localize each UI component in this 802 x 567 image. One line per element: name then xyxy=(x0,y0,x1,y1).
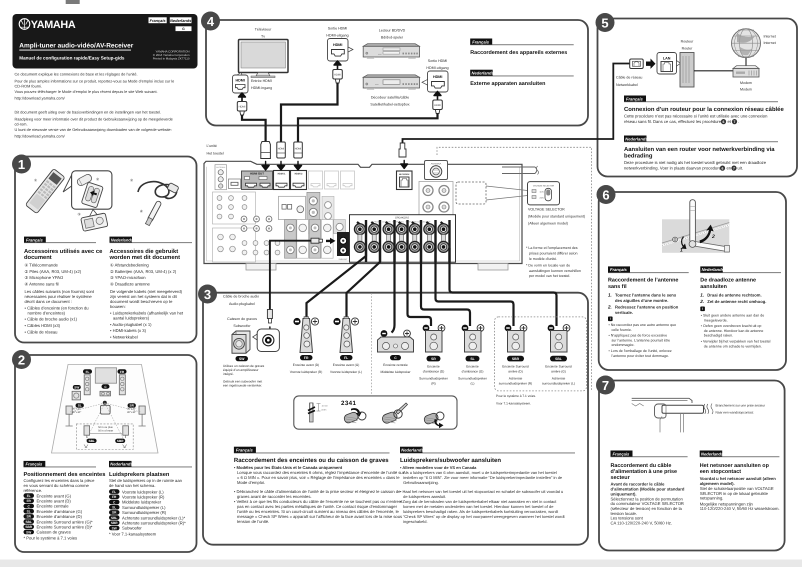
svg-text:SBL: SBL xyxy=(111,516,117,520)
svg-text:FL: FL xyxy=(344,356,348,360)
svg-text:(L): (L) xyxy=(471,382,475,386)
svg-text:HDMI-ingang: HDMI-ingang xyxy=(251,86,272,90)
svg-text:arrière (G): arrière (G) xyxy=(551,369,566,373)
svg-text:Achterste: Achterste xyxy=(552,377,566,381)
svg-text:HDMI-uitgang: HDMI-uitgang xyxy=(426,66,448,70)
svg-text:http://download.yamaha.com/: http://download.yamaha.com/ xyxy=(15,134,66,138)
svg-text:Middelste luidspreker: Middelste luidspreker xyxy=(380,370,411,374)
svg-text:Het toestel: Het toestel xyxy=(207,151,224,155)
svg-text:③: ③ xyxy=(78,213,81,217)
svg-text:30°±10°: 30°±10° xyxy=(72,411,81,414)
svg-text:50 in of meer: 50 in of meer xyxy=(98,429,113,432)
svg-text:④ Draadloze antenne: ④ Draadloze antenne xyxy=(110,282,151,287)
svg-text:Accessoires utilisés avec ce: Accessoires utilisés avec ce xyxy=(24,248,103,255)
svg-text:Tournez l’antenne dans le sens: Tournez l’antenne dans le sens xyxy=(615,292,677,297)
svg-text:SL: SL xyxy=(470,357,474,361)
svg-text:Enceinte Surround: Enceinte Surround xyxy=(545,364,572,368)
svg-text:HDMI: HDMI xyxy=(235,79,244,83)
svg-text:HDMI-uitgang: HDMI-uitgang xyxy=(326,33,348,37)
svg-text:Internet: Internet xyxy=(764,34,776,38)
svg-text:6: 6 xyxy=(602,187,609,202)
svg-text:③ YPAO-microfoon: ③ YPAO-microfoon xyxy=(110,275,146,280)
svg-text:Gebruiksaanwijzing.: Gebruiksaanwijzing. xyxy=(403,480,439,485)
svg-text:Français: Français xyxy=(472,39,490,44)
svg-text:HDMI: HDMI xyxy=(434,104,441,107)
svg-text:• Verwijder bij het verpakken: • Verwijder bij het verpakken van het to… xyxy=(701,340,771,344)
svg-text:Enceinte: Enceinte xyxy=(427,364,440,368)
svg-text:② Piles (AAA, R03, UM-4) (x2): ② Piles (AAA, R03, UM-4) (x2) xyxy=(25,269,82,274)
svg-text:* La forme et l’emplacement de: * La forme et l’emplacement des xyxy=(526,246,578,250)
svg-text:LAN: LAN xyxy=(663,56,671,60)
svg-text:HDMI 1: HDMI 1 xyxy=(278,173,287,176)
svg-text:SBL: SBL xyxy=(89,439,95,443)
svg-text:Nederlands: Nederlands xyxy=(170,18,192,23)
svg-text:SR: SR xyxy=(431,357,436,361)
svg-text:YAMAHA: YAMAHA xyxy=(31,19,76,31)
svg-text:(R): (R) xyxy=(431,382,435,386)
svg-text:L’unité: L’unité xyxy=(207,144,217,148)
svg-text:SBL: SBL xyxy=(26,520,32,524)
svg-text:1: 1 xyxy=(680,248,683,254)
svg-text:• HDMI-kabels (x 3): • HDMI-kabels (x 3) xyxy=(110,328,147,333)
svg-text:• N’appliquez pas de force exc: • N’appliquez pas de force excessive xyxy=(609,334,668,338)
svg-text:secteur: secteur xyxy=(611,475,631,481)
svg-text:meegeleverde.: meegeleverde. xyxy=(704,318,728,322)
svg-text:de antenne. Hierdoor kan de an: de antenne. Hierdoor kan de antenne xyxy=(704,329,764,333)
svg-text:aantal luidsprekers): aantal luidsprekers) xyxy=(113,316,150,321)
svg-text:en: en xyxy=(727,166,732,171)
svg-text:sans fil: sans fil xyxy=(608,284,627,290)
svg-text:FL: FL xyxy=(27,494,31,498)
svg-text:2.: 2. xyxy=(699,299,704,304)
svg-text:Audio-plugkabel: Audio-plugkabel xyxy=(229,302,255,306)
svg-text:1.: 1. xyxy=(700,292,704,297)
svg-text:▬▬: ▬▬ xyxy=(378,53,382,55)
svg-text:tension de l’unité.: tension de l’unité. xyxy=(237,519,269,524)
svg-text:SBR: SBR xyxy=(512,357,520,361)
svg-text:De draadloze antenne: De draadloze antenne xyxy=(700,277,756,283)
svg-text:Surroundluidspreker: Surroundluidspreker xyxy=(458,377,488,381)
svg-text:Pour de plus amples informatio: Pour de plus amples informations sur ce … xyxy=(15,79,175,83)
svg-text:SUB OUT: SUB OUT xyxy=(339,258,349,261)
svg-text:cd-rom.: cd-rom. xyxy=(15,123,28,127)
svg-text:Français: Français xyxy=(610,267,628,272)
svg-text:FR: FR xyxy=(112,495,117,499)
svg-text:aansluitingen kunnen verschill: aansluitingen kunnen verschillen xyxy=(529,269,581,273)
svg-text:• Câble de réseau: • Câble de réseau xyxy=(25,329,59,334)
svg-text:Français: Français xyxy=(26,237,44,242)
svg-text:ingeschakeld.: ingeschakeld. xyxy=(403,519,427,524)
svg-text:Nederlands: Nederlands xyxy=(701,451,724,456)
svg-text:Enceinte Surround: Enceinte Surround xyxy=(502,364,529,368)
svg-text:SPEAKERS: SPEAKERS xyxy=(395,217,409,220)
svg-text:de antenne om schade te vermij: de antenne om schade te vermijden. xyxy=(704,344,762,348)
svg-text:HDMI: HDMI xyxy=(239,106,246,109)
svg-text:Cette procédure n’est pas néce: Cette procédure n’est pas nécessaire si … xyxy=(624,114,768,119)
svg-text:• Câble de broche audio (x1): • Câble de broche audio (x1) xyxy=(25,317,78,322)
svg-text:Câble de réseau: Câble de réseau xyxy=(616,76,642,80)
svg-text:④ Antenne sans fil: ④ Antenne sans fil xyxy=(25,282,59,287)
svg-text:celle fournie.: celle fournie. xyxy=(612,328,632,332)
svg-text:Achterste: Achterste xyxy=(509,377,523,381)
svg-text:SW: SW xyxy=(112,526,117,530)
svg-text:surroundluidspreker (R): surroundluidspreker (R) xyxy=(499,382,532,386)
svg-text:Raadpleeg voor meer informatie: Raadpleeg voor meer informatie over dit … xyxy=(15,117,173,121)
svg-text:2: 2 xyxy=(18,352,25,367)
svg-text:HDMI: HDMI xyxy=(295,147,302,150)
svg-text:SR: SR xyxy=(26,515,31,519)
svg-text:nombre d’enceintes): nombre d’enceintes) xyxy=(28,310,66,315)
svg-text:Zet de antenne recht omhoog.: Zet de antenne recht omhoog. xyxy=(707,299,766,304)
svg-text:CA 110-120/220-240 V, 50/60 Hz: CA 110-120/220-240 V, 50/60 Hz. xyxy=(611,520,672,525)
svg-text:Français: Français xyxy=(236,448,254,453)
svg-text:Caisson de graves: Caisson de graves xyxy=(227,317,257,321)
svg-text:FR: FR xyxy=(304,356,309,360)
svg-text:4: 4 xyxy=(207,14,215,29)
svg-text:NETWORK: NETWORK xyxy=(399,173,410,176)
svg-text:②: ② xyxy=(96,177,99,181)
svg-text:SBR: SBR xyxy=(25,525,32,529)
svg-text:ANTENNA: ANTENNA xyxy=(431,162,442,165)
svg-text:• Ne raccordez pas une autre a: • Ne raccordez pas une autre antenne que xyxy=(609,323,677,327)
svg-text:U kunt de nieuwste versie van: U kunt de nieuwste versie van de Gebruik… xyxy=(15,128,172,132)
svg-text:Aansluiten van een router voor: Aansluiten van een router voor netwerkve… xyxy=(624,146,775,153)
svg-text:Français: Français xyxy=(626,96,644,101)
svg-text:SBL: SBL xyxy=(555,357,562,361)
svg-text:Redressez l’antenne en positio: Redressez l’antenne en position xyxy=(615,304,679,309)
svg-text:Français: Français xyxy=(26,462,44,467)
svg-text:HDMI: HDMI xyxy=(333,43,342,47)
svg-text:Nederlands: Nederlands xyxy=(472,71,495,76)
svg-text:verticale.: verticale. xyxy=(615,310,633,315)
svg-text:7: 7 xyxy=(733,167,735,171)
svg-text:Internet: Internet xyxy=(764,41,776,45)
svg-text:* Voor 7.1-kanaalsysteem: * Voor 7.1-kanaalsysteem xyxy=(109,532,157,537)
svg-text:Luidsprekers/subwoofer aanslui: Luidsprekers/subwoofer aansluiten xyxy=(400,457,501,464)
svg-text:* De vorm en locatie van de: * De vorm en locatie van de xyxy=(526,263,570,267)
svg-text:SW: SW xyxy=(74,386,79,390)
svg-text:110V: 110V xyxy=(540,190,545,193)
svg-text:d’ambiance (G): d’ambiance (G) xyxy=(462,369,484,373)
svg-text:6: 6 xyxy=(722,167,724,171)
svg-text:Raccordement du câble: Raccordement du câble xyxy=(611,462,672,469)
svg-text:Ce document explique les conne: Ce document explique les connexions de b… xyxy=(15,72,138,76)
svg-text:10 mm: 10 mm xyxy=(322,405,328,408)
svg-text:een stopcontact: een stopcontact xyxy=(700,469,742,475)
svg-text:Entrée HDMI: Entrée HDMI xyxy=(251,79,272,83)
svg-text:SR: SR xyxy=(112,511,117,515)
svg-text:Nederlands: Nederlands xyxy=(111,237,134,242)
svg-text:Français: Français xyxy=(150,18,167,23)
svg-text:Enceinte centrale: Enceinte centrale xyxy=(383,363,408,367)
svg-text:aansluiten: aansluiten xyxy=(700,284,727,290)
svg-text:* Pour le système à 7.1 voies: * Pour le système à 7.1 voies xyxy=(24,536,78,541)
svg-text:Positionnement des enceintes: Positionnement des enceintes xyxy=(24,471,106,478)
svg-text:Mode d’emploi.: Mode d’emploi. xyxy=(237,480,265,485)
svg-text:ANTENNA: ANTENNA xyxy=(216,166,226,169)
svg-text:de hand van het schema.: de hand van het schema. xyxy=(109,483,156,488)
svg-text:Pour le système à 7.1 voies.: Pour le système à 7.1 voies. xyxy=(496,394,536,398)
svg-text:5: 5 xyxy=(601,15,608,30)
svg-text:SBR: SBR xyxy=(111,521,118,525)
svg-text:HDMI OUT: HDMI OUT xyxy=(250,172,264,176)
svg-text:Surroundluidspreker: Surroundluidspreker xyxy=(419,377,449,381)
svg-text:2.: 2. xyxy=(607,304,612,309)
svg-text:FL: FL xyxy=(112,490,116,494)
svg-text:intégré.: intégré. xyxy=(223,372,234,376)
svg-text:110-120/220-240 V, 50/60 Hz wi: 110-120/220-240 V, 50/60 Hz wisselstroom… xyxy=(700,506,780,511)
svg-text:Accessoires die gebruikt: Accessoires die gebruikt xyxy=(110,248,179,255)
svg-text:VOLTAGE SELECTOR: VOLTAGE SELECTOR xyxy=(533,184,555,187)
svg-text:240V: 240V xyxy=(540,196,545,199)
svg-text:1.: 1. xyxy=(608,292,612,297)
svg-text:7: 7 xyxy=(602,378,609,393)
svg-text:.: . xyxy=(738,119,739,124)
svg-text:1: 1 xyxy=(18,157,25,172)
svg-text:Raccordement des appareils ext: Raccordement des appareils externes xyxy=(470,50,567,56)
svg-text:G: G xyxy=(182,27,185,31)
svg-text:Externe apparaten aansluiten: Externe apparaten aansluiten xyxy=(470,81,545,87)
svg-text:Draai de antenne rechtsom.: Draai de antenne rechtsom. xyxy=(707,292,761,297)
svg-text:per model van het toestel.: per model van het toestel. xyxy=(529,274,570,278)
svg-text:• Câbles HDMI (x3): • Câbles HDMI (x3) xyxy=(25,323,61,328)
svg-text:(Modèle pour standard uniqueme: (Modèle pour standard uniquement) xyxy=(528,214,585,218)
svg-text:endommagée.: endommagée. xyxy=(612,343,635,347)
svg-text:netwerkverbinding. Voer in pla: netwerkverbinding. Voer in plaats daarva… xyxy=(624,166,723,171)
svg-text:d’ambiance (D): d’ambiance (D) xyxy=(423,369,445,373)
svg-text:Dit document geeft uitleg over: Dit document geeft uitleg over de basisv… xyxy=(15,111,162,115)
svg-text:Caisson de graves: Caisson de graves xyxy=(37,530,71,535)
svg-text:een ingebouwde versterker.: een ingebouwde versterker. xyxy=(223,384,262,388)
svg-text:Nederlands: Nederlands xyxy=(110,462,133,467)
svg-text:Modem: Modem xyxy=(740,88,752,92)
svg-text:• Sluit geen andere antenne aa: • Sluit geen andere antenne aan dan de xyxy=(701,314,764,318)
svg-text:prises pourraient différer sel: prises pourraient différer selon xyxy=(529,251,577,255)
svg-text:2: 2 xyxy=(711,234,715,240)
svg-text:• Netwerkkabel: • Netwerkkabel xyxy=(110,334,138,339)
svg-text:(3/8”): (3/8”) xyxy=(322,409,327,412)
svg-text:▬▬: ▬▬ xyxy=(375,84,379,86)
svg-text:worden met dit document: worden met dit document xyxy=(109,254,181,261)
svg-text:• Audio-plugkabel (x 1): • Audio-plugkabel (x 1) xyxy=(110,322,152,327)
svg-text:④: ④ xyxy=(140,209,143,213)
svg-text:Tv: Tv xyxy=(261,34,265,38)
svg-text:7: 7 xyxy=(734,120,736,124)
svg-text:!: ! xyxy=(702,307,703,311)
svg-text:Routeur: Routeur xyxy=(681,39,695,43)
svg-text:sur l’antenne. L’antenne pourr: sur l’antenne. L’antenne pourrait être xyxy=(612,338,671,342)
svg-text:Printed in Malaysia ZK77110: Printed in Malaysia ZK77110 xyxy=(153,57,190,61)
svg-text:netspanning.: netspanning. xyxy=(700,496,724,501)
svg-text:Satelliet/kabel-settopbox: Satelliet/kabel-settopbox xyxy=(370,102,409,106)
svg-text:(Alleen algemeen model): (Alleen algemeen model) xyxy=(528,221,568,225)
svg-text:Raccordement de l’antenne: Raccordement de l’antenne xyxy=(608,277,678,283)
svg-text:Bd/dvd-speler: Bd/dvd-speler xyxy=(381,35,404,39)
svg-text:① Afstandsbediening: ① Afstandsbediening xyxy=(110,263,149,268)
svg-text:• Lors de l’emballage de l’uni: • Lors de l’emballage de l’unité, enleve… xyxy=(609,349,672,353)
svg-text:Netwerkkabel: Netwerkkabel xyxy=(616,83,638,87)
svg-text:② Batterijen (AAA, R03, UM-4): ② Batterijen (AAA, R03, UM-4) (x 2) xyxy=(110,269,177,274)
svg-text:Naar een wandstopcontact: Naar een wandstopcontact xyxy=(716,411,754,415)
svg-text:HDMI 2: HDMI 2 xyxy=(295,173,304,176)
svg-text:Router: Router xyxy=(682,46,694,50)
svg-text:Sortie HDMI: Sortie HDMI xyxy=(428,59,448,63)
svg-text:Français: Français xyxy=(613,451,631,456)
svg-text:Téléviseur: Téléviseur xyxy=(255,27,272,31)
svg-text:HDMI: HDMI xyxy=(334,74,341,77)
svg-text:Ampli-tuner audio-vidéo/AV-Rec: Ampli-tuner audio-vidéo/AV-Receiver xyxy=(19,43,133,50)
svg-text:http://download.yamaha.com/: http://download.yamaha.com/ xyxy=(15,96,66,100)
svg-text:des aiguilles d’une montre.: des aiguilles d’une montre. xyxy=(615,298,668,303)
svg-text:le modèle d’unité.: le modèle d’unité. xyxy=(529,257,557,261)
svg-text:3: 3 xyxy=(204,287,211,302)
svg-text:SBR: SBR xyxy=(117,439,124,443)
svg-text:bouwen:: bouwen: xyxy=(110,304,126,309)
svg-text:surroundluidspreker (L): surroundluidspreker (L) xyxy=(542,382,575,386)
svg-text:l’antenne pour éviter tout dom: l’antenne pour éviter tout dommage. xyxy=(612,354,670,358)
svg-text:Vous pouvez télécharger le Mod: Vous pouvez télécharger le Mode d’emploi… xyxy=(15,90,158,94)
svg-text:Manuel de configuration rapide: Manuel de configuration rapide/Easy Setu… xyxy=(19,56,125,61)
svg-text:Subwoofer: Subwoofer xyxy=(122,526,142,531)
svg-text:②: ② xyxy=(130,179,133,183)
svg-text:Connexion d’un routeur pour la: Connexion d’un routeur pour la connexion… xyxy=(624,106,784,113)
svg-text:SL: SL xyxy=(112,506,116,510)
svg-text:50 in ou plus: 50 in ou plus xyxy=(98,426,113,429)
svg-text:Enceinte: Enceinte xyxy=(466,364,479,368)
svg-text:Subwoofer: Subwoofer xyxy=(233,324,251,328)
svg-text:Nederlands: Nederlands xyxy=(401,448,424,453)
svg-text:①: ① xyxy=(34,179,37,183)
svg-text:SW: SW xyxy=(239,357,245,361)
svg-text:Voorste luidspreker (R): Voorste luidspreker (R) xyxy=(290,370,323,374)
svg-text:SW: SW xyxy=(26,530,31,534)
svg-text:Branchement sur une prise sect: Branchement sur une prise secteur xyxy=(716,404,767,408)
svg-text:6: 6 xyxy=(723,120,725,124)
svg-text:FR: FR xyxy=(27,499,32,503)
svg-text:Voor 7.1-kanaalsysteem.: Voor 7.1-kanaalsysteem. xyxy=(496,402,531,406)
svg-text:arrière (D): arrière (D) xyxy=(508,369,523,373)
svg-text:document: document xyxy=(24,254,52,261)
svg-text:Lecteur BD/DVD: Lecteur BD/DVD xyxy=(379,28,406,32)
svg-text:Enceinte avant (G): Enceinte avant (G) xyxy=(333,363,360,367)
svg-text:Voorste luidspreker (L): Voorste luidspreker (L) xyxy=(330,370,362,374)
svg-text:FRONT CENTER SURROUND SU: FRONT CENTER SURROUND SURROUND BACK/BI-A… xyxy=(374,220,431,223)
svg-text:HDMI: HDMI xyxy=(278,147,285,150)
svg-text:beschadigd raken.: beschadigd raken. xyxy=(704,334,733,338)
svg-text:FL: FL xyxy=(86,370,90,374)
svg-text:HDMI: HDMI xyxy=(433,75,442,79)
svg-text:30°±10°: 30°±10° xyxy=(127,411,136,414)
svg-text:Raccordement des enceintes ou: Raccordement des enceintes ou du caisson… xyxy=(234,457,389,464)
svg-text:Nederlands: Nederlands xyxy=(702,267,725,272)
svg-text:CD-ROM fourni.: CD-ROM fourni. xyxy=(15,85,43,89)
svg-text:Nederlands: Nederlands xyxy=(625,136,648,141)
svg-text:③ Microphone YPAO: ③ Microphone YPAO xyxy=(25,275,65,280)
svg-text:Deze procedure is niet nodig a: Deze procedure is niet nodig als het toe… xyxy=(624,160,767,165)
svg-text:① Télécommande: ① Télécommande xyxy=(25,263,59,268)
svg-text:Sortie HDMI: Sortie HDMI xyxy=(328,26,348,30)
svg-text:Décodeur satellite/câble: Décodeur satellite/câble xyxy=(371,95,409,99)
svg-text:Câble de broche audio: Câble de broche audio xyxy=(223,295,259,299)
svg-text:Modem: Modem xyxy=(740,81,752,85)
svg-text:Luidsprekers plaatsen: Luidsprekers plaatsen xyxy=(109,471,170,478)
svg-text:Enceinte avant (D): Enceinte avant (D) xyxy=(293,363,319,367)
svg-text:bedrading: bedrading xyxy=(624,152,653,159)
svg-text:décrit dans ce document :: décrit dans ce document : xyxy=(25,299,72,304)
svg-text:SL: SL xyxy=(27,510,31,514)
svg-text:réseau sans fil. Dans ce cas,: réseau sans fil. Dans ce cas, effectuez … xyxy=(624,119,723,124)
svg-text:!: ! xyxy=(610,317,611,321)
svg-text:VOLTAGE SELECTOR: VOLTAGE SELECTOR xyxy=(528,208,565,212)
svg-text:2341: 2341 xyxy=(341,400,357,407)
svg-text:uit.: uit. xyxy=(738,166,744,171)
svg-text:• Oefen geen overdreven kracht: • Oefen geen overdreven kracht uit op xyxy=(701,324,762,328)
